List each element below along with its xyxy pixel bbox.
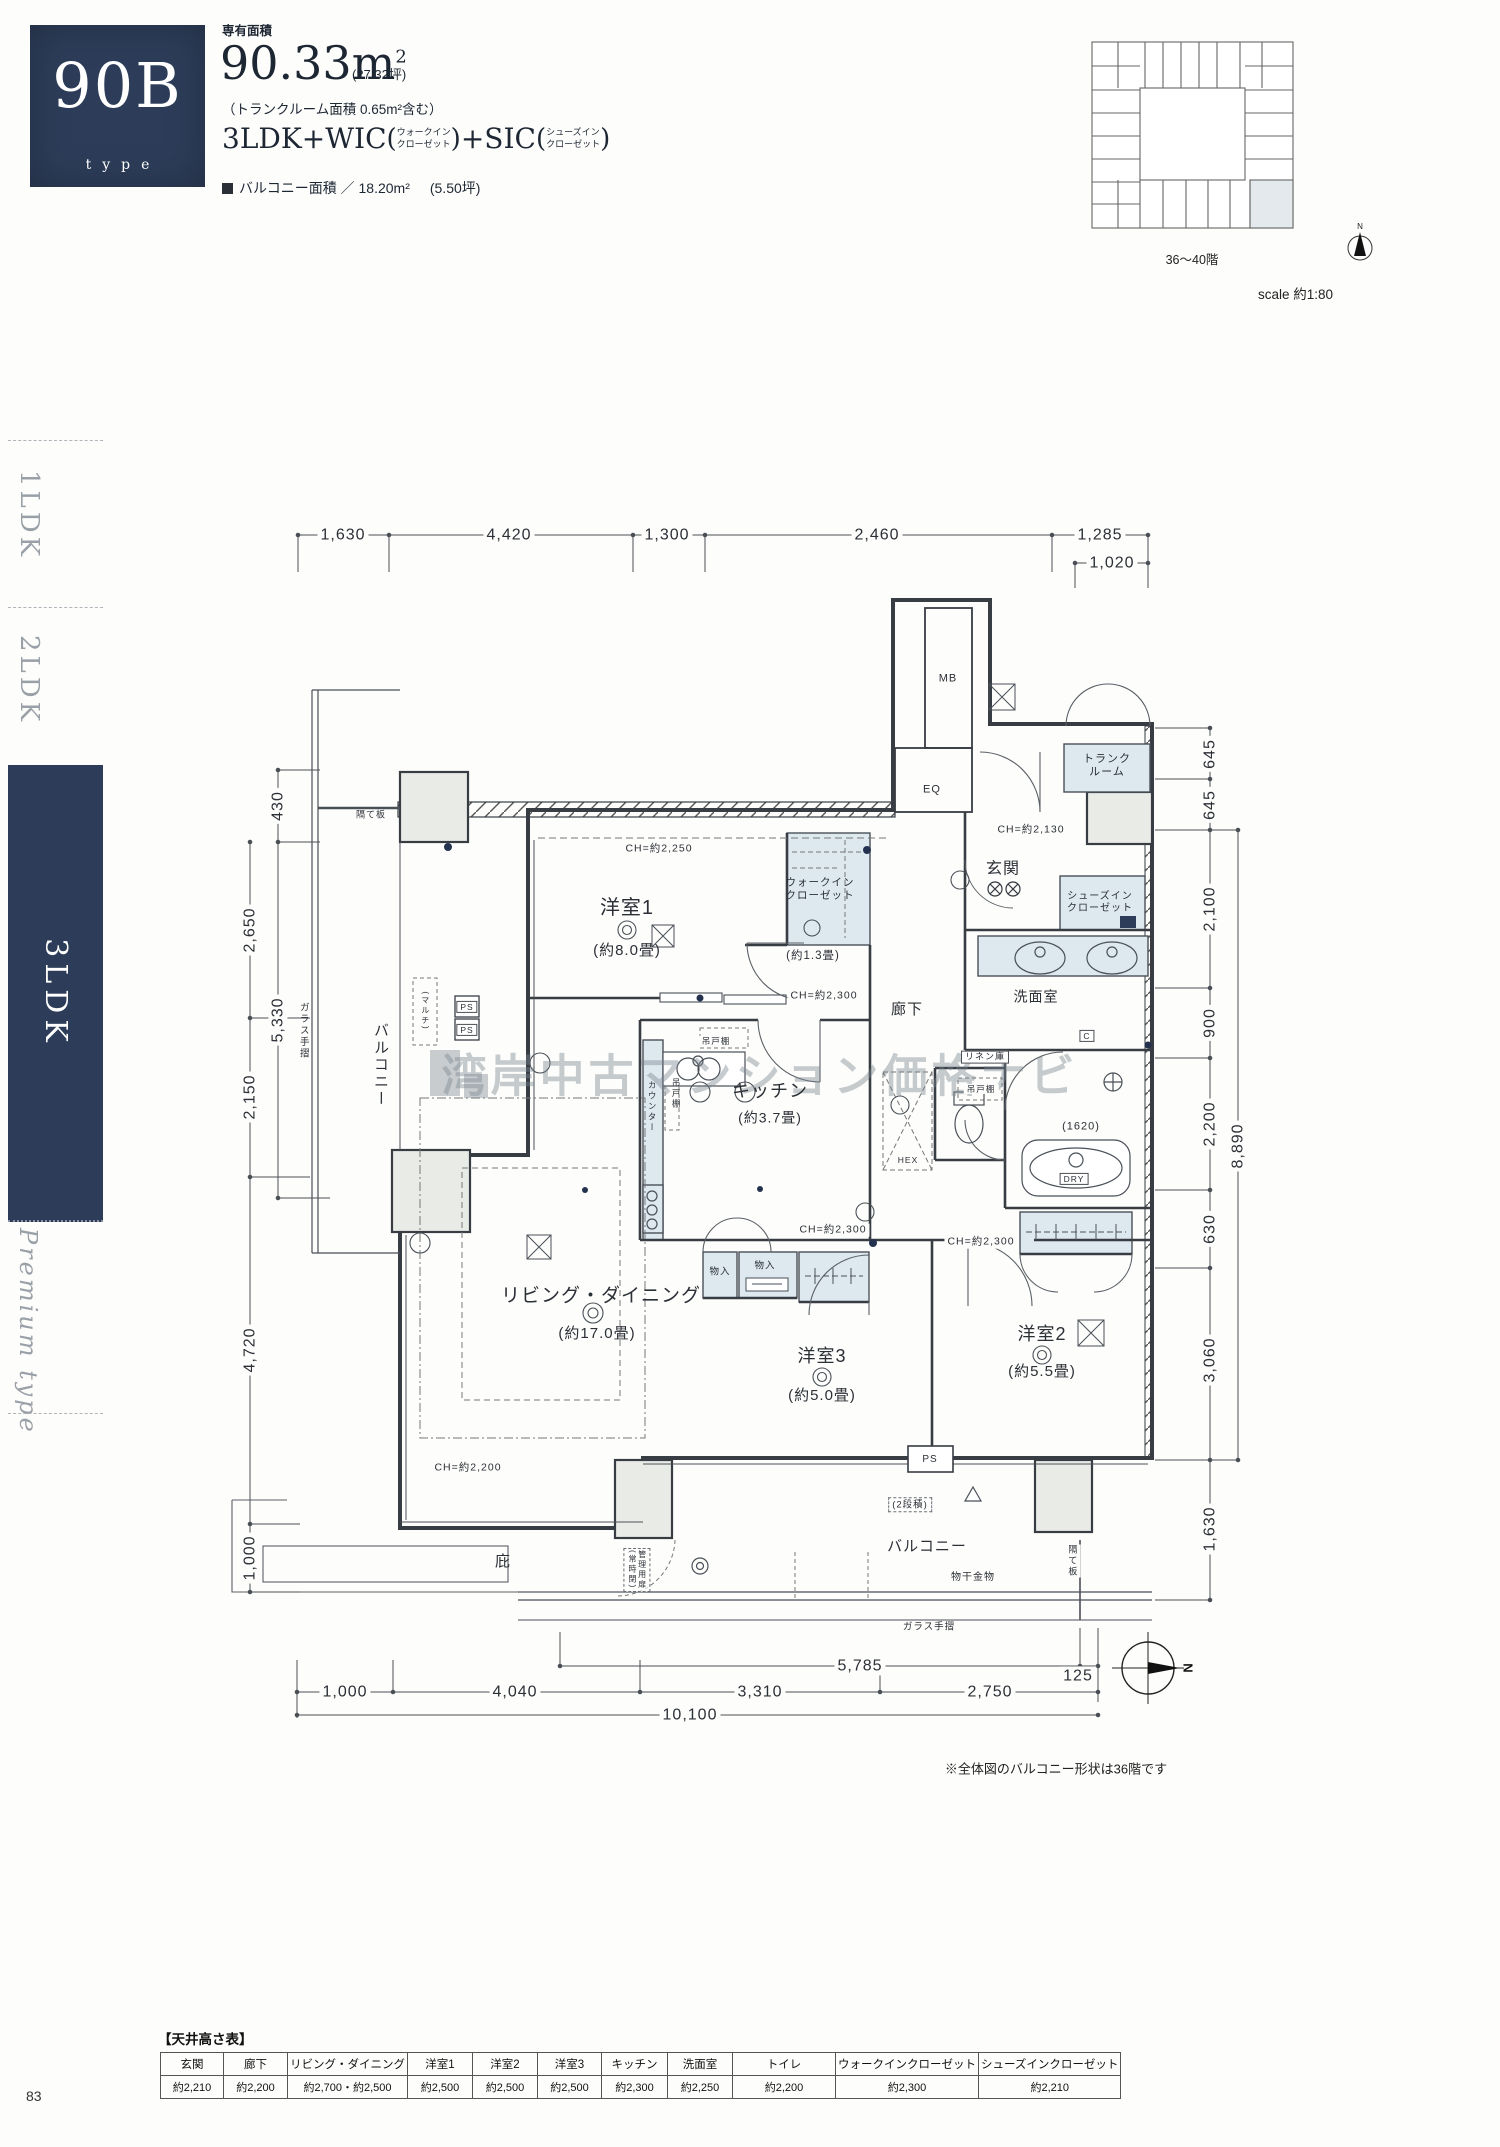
ceiling-table-header-cell: キッチン (602, 2053, 668, 2076)
ceiling-table-header-cell: リビング・ダイニング (288, 2053, 408, 2076)
x-box-symbols (527, 684, 1104, 1346)
ceiling-table-header-cell: トイレ (733, 2053, 836, 2076)
genkan-light-icons (988, 882, 1020, 896)
keyplan-building-outline (1092, 42, 1293, 228)
ceiling-table-value-cell: 約2,700・約2,500 (288, 2076, 408, 2099)
watermark-text: 湾岸中古マンション価格ナビ (441, 1040, 1078, 1105)
ceiling-table-value-cell: 約2,500 (538, 2076, 602, 2099)
sic-accent (1120, 916, 1136, 928)
shaft-mb-eq (895, 608, 972, 812)
ceiling-table-value-cell: 約2,500 (408, 2076, 473, 2099)
ceiling-table-value-row: 約2,210約2,200約2,700・約2,500約2,500約2,500約2,… (161, 2076, 1121, 2099)
ceiling-height-table: 玄関廊下リビング・ダイニング洋室1洋室2洋室3キッチン洗面室トイレウォークインク… (160, 2052, 1121, 2099)
ceiling-table-value-cell: 約2,200 (224, 2076, 288, 2099)
ceiling-table-value-cell: 約2,200 (733, 2076, 836, 2099)
keyplan-scale: scale 約1:80 (1258, 283, 1333, 303)
ps-box (908, 1446, 953, 1472)
ceiling-table-value-cell: 約2,250 (668, 2076, 733, 2099)
compass-north-label: N (1181, 1663, 1196, 1672)
brochure-page: { "page": {"number": "83"}, "sidebar": {… (0, 0, 1500, 2147)
dashed-details (413, 838, 1002, 1598)
ceiling-table-header-row: 玄関廊下リビング・ダイニング洋室1洋室2洋室3キッチン洗面室トイレウォークインク… (161, 2053, 1121, 2076)
ceiling-table-value-cell: 約2,500 (473, 2076, 538, 2099)
shaded-storage (643, 744, 1150, 1302)
ceiling-table-header-cell: ウォークインクローゼット (836, 2053, 979, 2076)
ceiling-table-header-cell: 玄関 (161, 2053, 224, 2076)
eaves-outline (232, 1500, 643, 1592)
ceiling-table-header-cell: 洗面室 (668, 2053, 733, 2076)
ceiling-table-header-cell: 廊下 (224, 2053, 288, 2076)
ceiling-table-value-cell: 約2,300 (602, 2076, 668, 2099)
ceiling-table-header-cell: 洋室2 (473, 2053, 538, 2076)
ceiling-table-header-cell: 洋室3 (538, 2053, 602, 2076)
ceiling-table-value-cell: 約2,300 (836, 2076, 979, 2099)
page-number: 83 (26, 2088, 42, 2104)
sliding-door (660, 993, 786, 1004)
keyplan-north-label: N (1357, 222, 1363, 231)
ceiling-table-header-cell: シューズインクローゼット (979, 2053, 1121, 2076)
ceiling-table-header-cell: 洋室1 (408, 2053, 473, 2076)
ceiling-table-value-cell: 約2,210 (979, 2076, 1121, 2099)
dimension-lines (248, 533, 1240, 1718)
ceiling-table-value-cell: 約2,210 (161, 2076, 224, 2099)
ceiling-table-title: 【天井高さ表】 (158, 2028, 253, 2048)
keyplan-compass-icon (1348, 232, 1372, 260)
ps-left-boxes (455, 996, 479, 1040)
keyplan-floor-range: 36〜40階 (1166, 249, 1219, 268)
north-compass-icon (1112, 1632, 1184, 1704)
plan-note: ※全体図のバルコニー形状は36階です (945, 1759, 1167, 1778)
